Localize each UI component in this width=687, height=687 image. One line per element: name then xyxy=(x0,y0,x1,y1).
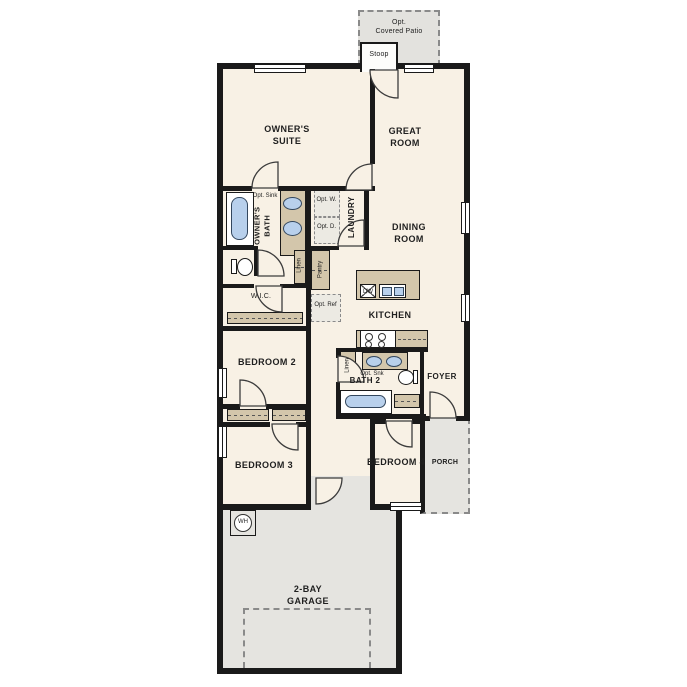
bath2-sink-1 xyxy=(366,356,382,367)
owners-sink-1 xyxy=(283,197,302,210)
stoop-label: Stoop xyxy=(360,50,398,59)
room-label-great-room: GREAT ROOM xyxy=(374,126,436,149)
opt-washer-label: Opt. W. xyxy=(315,197,338,204)
opt-dryer-box: Opt. D. xyxy=(314,217,340,244)
water-heater-label: WH xyxy=(234,519,253,526)
wall-suite-bottom-a xyxy=(223,186,252,191)
opt-ref-box: Opt. Ref xyxy=(311,294,341,322)
patio-label-line1: Opt. xyxy=(392,19,406,26)
opt-sink-label: Opt. Sink xyxy=(252,193,278,200)
room-label-owners-suite: OWNER'S SUITE xyxy=(256,124,318,147)
wall-bath2-left-a xyxy=(336,350,340,358)
wall-foyer-bottom-b xyxy=(456,416,470,421)
stove xyxy=(360,330,396,348)
covered-patio-label: Opt. Covered Patio xyxy=(362,18,436,36)
wic-shelf xyxy=(227,312,303,324)
owners-tub xyxy=(226,192,254,246)
counter-dash xyxy=(398,339,426,340)
wall-bath2-left-b xyxy=(336,382,340,416)
wall-bed2-bottom-a xyxy=(223,404,240,409)
window-dining-right xyxy=(461,202,470,234)
pantry-label: Pantry xyxy=(318,252,325,286)
wall-suite-greatroom xyxy=(370,69,375,164)
window-bedroom3-left xyxy=(218,426,227,458)
opt-washer-box: Opt. W. xyxy=(314,190,340,217)
wall-suite-bottom-b xyxy=(278,186,375,191)
wall-bath2-right xyxy=(420,350,424,418)
opt-ref-label: Opt. Ref xyxy=(312,302,339,309)
patio-label-line2: Covered Patio xyxy=(376,28,423,35)
wall-bath-bottom-a xyxy=(223,284,254,288)
room-label-laundry: LAUNDRY xyxy=(347,190,357,244)
window-bedroom4-bottom xyxy=(390,502,422,511)
bath2-tub xyxy=(340,390,392,414)
owners-toilet-bowl xyxy=(237,258,253,276)
room-label-porch: PORCH xyxy=(422,458,468,467)
owners-sink-2 xyxy=(283,221,302,236)
room-label-wic: W.I.C. xyxy=(229,292,293,301)
dishwasher: DW xyxy=(360,284,376,298)
opt-dryer-label: Opt. D. xyxy=(315,224,338,231)
floor-plan: Opt. Covered Patio Stoop xyxy=(0,0,687,687)
garage-vestibule xyxy=(311,476,370,510)
wall-bath-bottom-b xyxy=(280,284,306,288)
room-label-foyer: FOYER xyxy=(414,372,470,382)
room-label-kitchen: KITCHEN xyxy=(352,310,428,322)
garage-door-outline xyxy=(243,608,371,668)
wall-bath-main-vert xyxy=(306,186,311,331)
room-label-dining-room: DINING ROOM xyxy=(378,222,440,245)
closet-hall xyxy=(272,409,306,421)
window-kitchen-right xyxy=(461,294,470,322)
water-heater: WH xyxy=(230,510,256,536)
room-label-owners-bath: OWNER'S BATH xyxy=(252,204,272,248)
wall-bed2-bottom-b xyxy=(266,404,311,409)
linen-hall-label: Linen xyxy=(297,250,304,280)
closet-bedroom2 xyxy=(227,409,269,421)
room-label-bedroom2: BEDROOM 2 xyxy=(228,357,306,369)
wall-wic-bottom xyxy=(223,326,311,331)
room-label-garage: 2-BAY GARAGE xyxy=(278,584,338,607)
window-greatroom-top xyxy=(404,64,434,73)
wall-foyer-bottom-a xyxy=(420,416,430,421)
room-label-bath2: BATH 2 xyxy=(336,376,394,386)
wall-wc-right xyxy=(254,250,258,276)
bath2-shelf xyxy=(394,394,420,408)
room-label-bedroom3: BEDROOM 3 xyxy=(224,460,304,472)
dishwasher-label: DW xyxy=(361,289,375,296)
bath2-toilet-bowl xyxy=(398,370,414,385)
wall-laundry-bottom xyxy=(311,246,339,250)
bath2-sink-2 xyxy=(386,356,402,367)
wall-bed3-top-a xyxy=(223,422,270,427)
wall-bed3-top-b xyxy=(296,422,311,427)
wall-bed2-right xyxy=(306,331,311,506)
window-owners-suite-top xyxy=(254,64,306,73)
wall-laundry-right xyxy=(364,186,369,250)
window-bedroom2-left xyxy=(218,368,227,398)
kitchen-sink xyxy=(379,284,406,298)
